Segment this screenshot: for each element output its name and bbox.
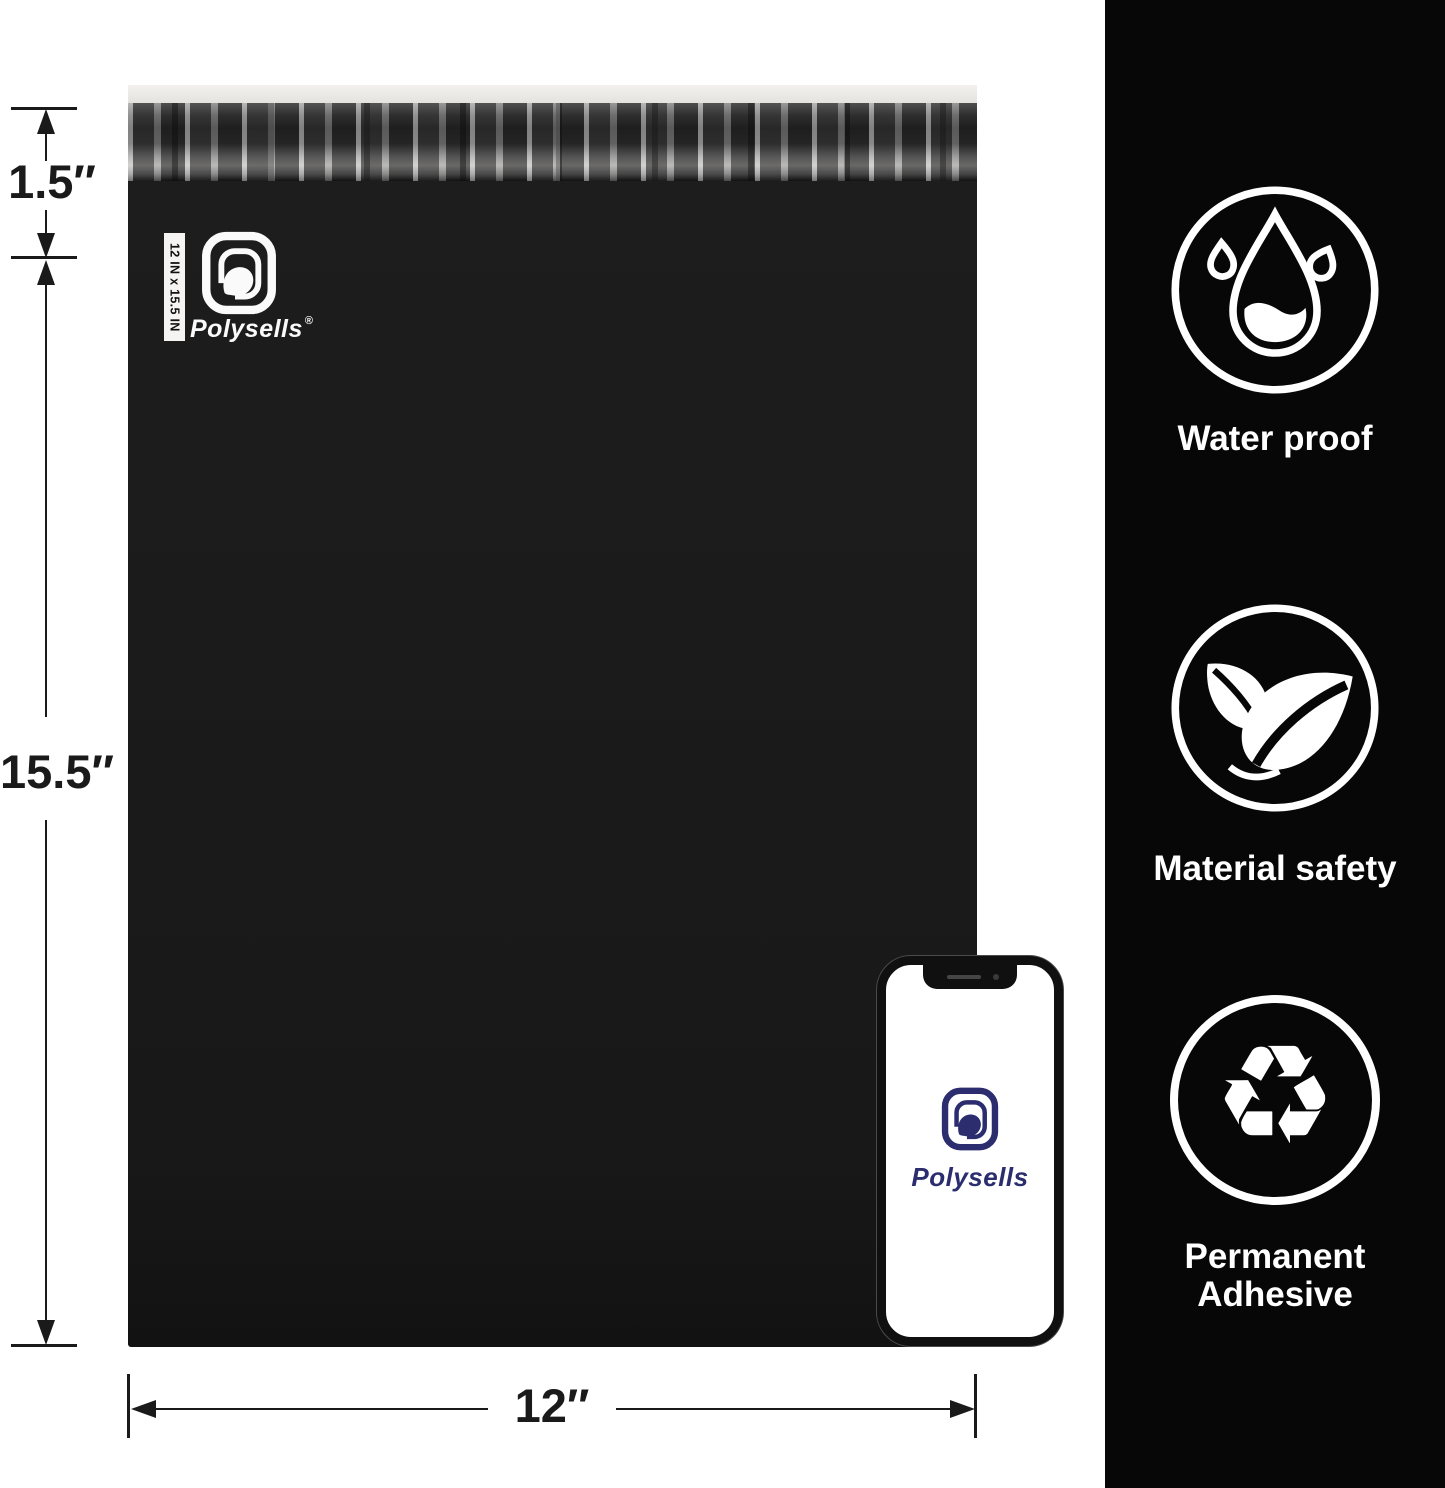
- dimension-tick: [11, 1344, 77, 1347]
- brand-name: Polysells: [190, 315, 303, 343]
- polysells-logo-icon: [201, 231, 277, 320]
- features-panel: Water proof Material safety ♻ Permanent …: [1105, 0, 1445, 1488]
- water-drop-icon: [1170, 185, 1380, 395]
- dim-height-label: 15.5″: [0, 746, 112, 798]
- bag-seal-strip: [128, 85, 977, 103]
- poly-mailer-bag: 12 IN x 15.5 IN Polysells®: [128, 85, 977, 1347]
- feature-label-permanent-adhesive: Permanent Adhesive: [1155, 1238, 1395, 1314]
- brand-wordmark: Polysells®: [190, 315, 350, 344]
- feature-label-material-safety: Material safety: [1105, 850, 1445, 888]
- phone-screen: Polysells: [886, 965, 1054, 1337]
- dimension-line: [154, 1408, 488, 1410]
- arrow-left-icon: [131, 1400, 156, 1418]
- arrow-down-icon: [37, 1320, 55, 1345]
- polysells-logo-icon: [941, 1087, 999, 1156]
- dim-flap-label: 1.5″: [0, 156, 104, 208]
- feature-label-water-proof: Water proof: [1105, 420, 1445, 458]
- recycle-glyph: ♻: [1213, 1027, 1337, 1165]
- dimension-tick: [11, 256, 77, 259]
- dim-width-label: 12″: [488, 1380, 616, 1432]
- arrow-right-icon: [950, 1400, 975, 1418]
- bag-adhesive-flap: [128, 103, 977, 181]
- dimension-line: [45, 282, 47, 717]
- leaves-icon: [1170, 603, 1380, 813]
- recycle-icon: ♻: [1170, 995, 1380, 1205]
- product-image: 12 IN x 15.5 IN Polysells®: [0, 0, 1445, 1488]
- dimension-tick: [127, 1374, 130, 1438]
- dimension-line: [616, 1408, 950, 1410]
- phone-mockup: Polysells: [877, 956, 1063, 1346]
- registered-mark: ®: [305, 315, 314, 327]
- size-label-vertical: 12 IN x 15.5 IN: [164, 233, 185, 341]
- arrow-down-icon: [37, 233, 55, 258]
- dimension-line: [45, 820, 47, 1322]
- dimension-tick: [974, 1374, 977, 1438]
- phone-brand-wordmark: Polysells: [911, 1162, 1028, 1193]
